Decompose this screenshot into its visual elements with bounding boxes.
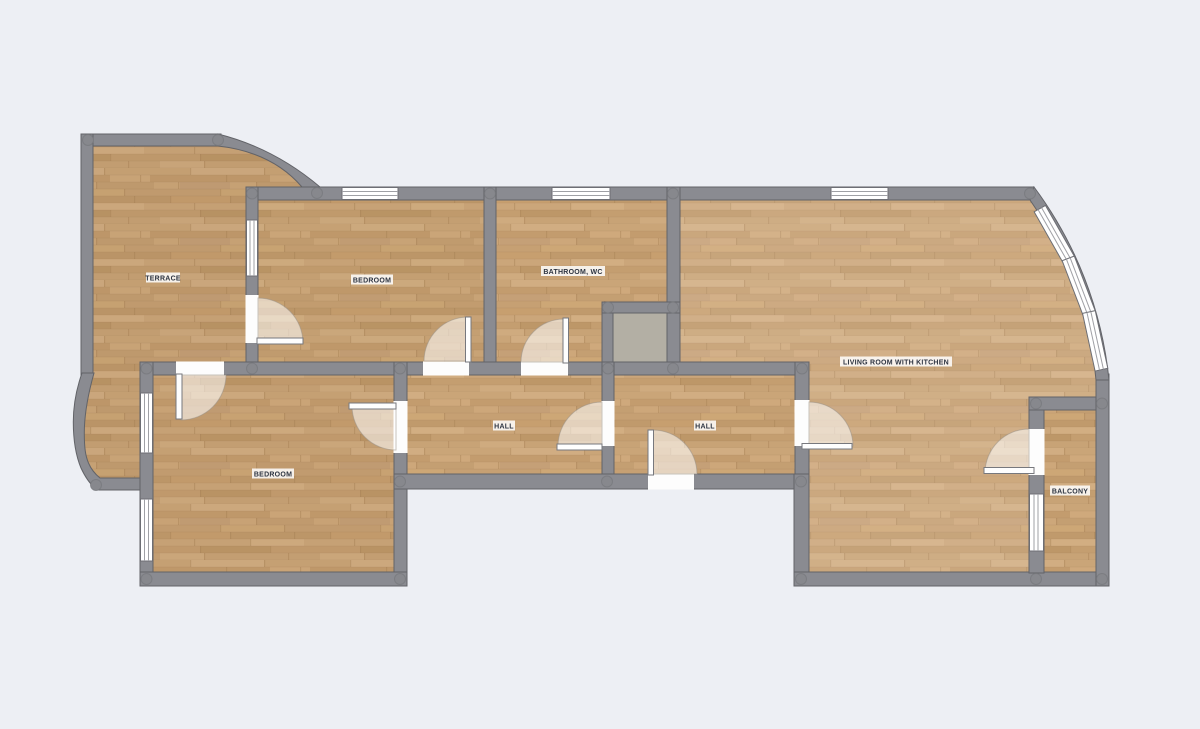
svg-text:HALL: HALL [494,424,514,431]
svg-text:BEDROOM: BEDROOM [353,278,391,285]
svg-text:BALCONY: BALCONY [1052,489,1088,496]
svg-text:HALL: HALL [695,424,715,431]
svg-text:LIVING ROOM WITH KITCHEN: LIVING ROOM WITH KITCHEN [843,360,949,367]
svg-text:BATHROOM, WC: BATHROOM, WC [543,269,602,276]
svg-text:BEDROOM: BEDROOM [254,472,292,479]
svg-text:TERRACE: TERRACE [145,276,181,283]
